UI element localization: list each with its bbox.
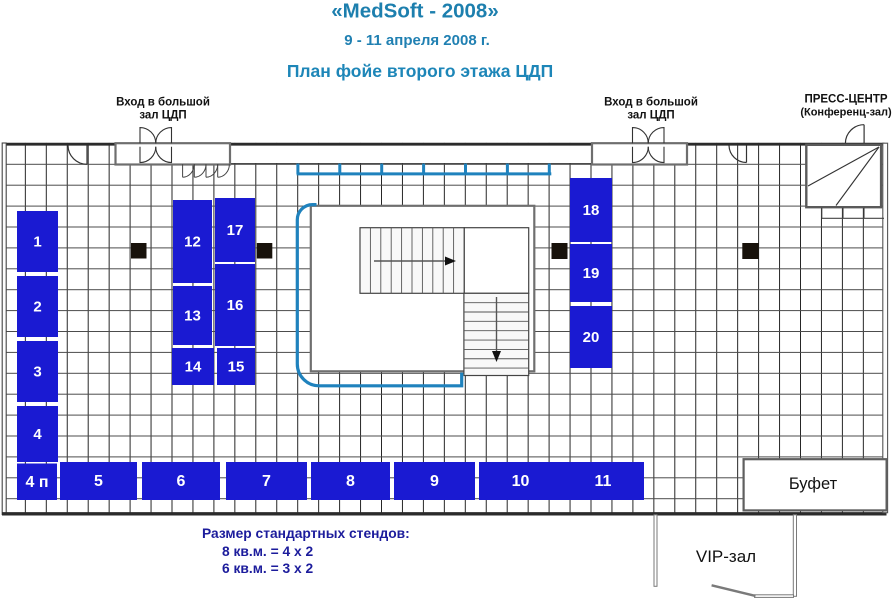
svg-text:13: 13 [184,308,201,325]
svg-text:11: 11 [595,473,612,490]
svg-text:3: 3 [33,364,41,381]
svg-text:Вход в большой: Вход в большой [604,97,698,109]
svg-text:зал ЦДП: зал ЦДП [627,110,674,122]
svg-text:Буфет: Буфет [789,475,838,493]
svg-text:VIP-зал: VIP-зал [696,547,756,566]
svg-text:20: 20 [583,329,600,346]
svg-text:6: 6 [177,473,186,490]
svg-text:14: 14 [185,359,202,376]
svg-text:2: 2 [33,299,41,316]
svg-text:8: 8 [346,473,355,490]
svg-text:Вход в большой: Вход в большой [116,97,210,109]
svg-text:9: 9 [430,473,439,490]
svg-text:5: 5 [94,473,103,490]
svg-text:Размер стандартных стендов:: Размер стандартных стендов: [202,526,410,541]
svg-text:17: 17 [227,222,244,239]
svg-text:16: 16 [227,297,244,314]
svg-text:9 - 11 апреля 2008 г.: 9 - 11 апреля 2008 г. [344,32,490,49]
svg-text:12: 12 [184,234,201,251]
svg-text:18: 18 [583,202,600,219]
svg-text:План фойе второго этажа ЦДП: План фойе второго этажа ЦДП [287,61,553,81]
svg-text:4 п: 4 п [25,474,48,491]
svg-text:8 кв.м. = 4 х 2: 8 кв.м. = 4 х 2 [222,544,314,559]
svg-text:«MedSoft - 2008»: «MedSoft - 2008» [331,0,498,23]
svg-text:15: 15 [228,359,245,376]
svg-text:19: 19 [583,265,600,282]
svg-text:1: 1 [33,234,41,251]
svg-text:6 кв.м. = 3 х 2: 6 кв.м. = 3 х 2 [222,561,314,576]
svg-text:7: 7 [262,473,271,490]
svg-text:4: 4 [33,426,42,443]
svg-text:ПРЕСС-ЦЕНТР: ПРЕСС-ЦЕНТР [804,94,887,106]
svg-text:(Конференц-зал): (Конференц-зал) [800,107,892,119]
svg-text:зал ЦДП: зал ЦДП [139,110,186,122]
svg-text:10: 10 [512,473,530,490]
